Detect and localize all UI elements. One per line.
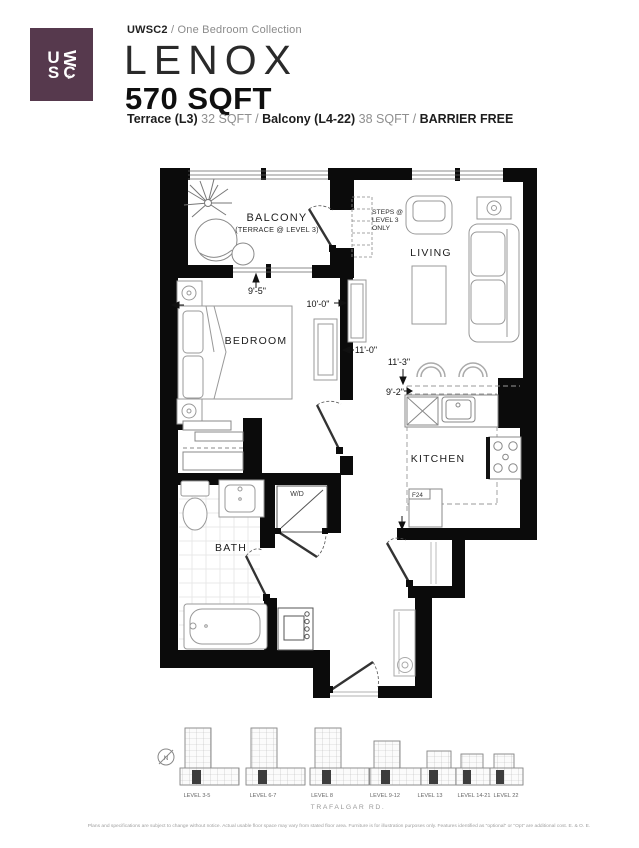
building-level-9-12 xyxy=(370,741,423,785)
toilet-tank xyxy=(181,481,209,496)
keyplan-labels: LEVEL 3-5 LEVEL 6-7 LEVEL 8 LEVEL 9-12 L… xyxy=(184,793,519,799)
dim-living: 11'-3" xyxy=(388,357,410,367)
floorplan-page: { "header": { "logo": {"u": "U", "w": "W… xyxy=(0,0,639,848)
label-steps-note: STEPS @ LEVEL 3 ONLY xyxy=(372,209,403,232)
coffee-table xyxy=(412,266,446,324)
steps-dashed-outline xyxy=(352,197,372,257)
bar-stools xyxy=(417,363,487,377)
level-label-6: LEVEL 22 xyxy=(494,793,519,799)
label-living: LIVING xyxy=(410,247,452,259)
lounge-chair xyxy=(195,219,237,261)
label-wd: W/D xyxy=(290,491,304,498)
level-label-0: LEVEL 3-5 xyxy=(184,793,211,799)
level-label-3: LEVEL 9-12 xyxy=(370,793,400,799)
bedroom-door-leaf xyxy=(317,405,340,451)
building-level-8 xyxy=(310,728,369,785)
label-fridge: F24 xyxy=(412,492,423,499)
level-label-2: LEVEL 8 xyxy=(311,793,333,799)
sliding-closet xyxy=(183,421,243,470)
entry-door-leaf xyxy=(331,662,373,690)
dim-kitchen: 9'-2" xyxy=(386,387,404,397)
label-bedroom: BEDROOM xyxy=(225,335,288,347)
compass-n: N xyxy=(164,755,169,762)
svg-text:LEVEL 3: LEVEL 3 xyxy=(372,217,399,224)
level-label-4: LEVEL 13 xyxy=(418,793,443,799)
label-kitchen: KITCHEN xyxy=(411,453,466,465)
nightstand xyxy=(177,281,202,306)
dim-balcony: 9'-5" xyxy=(248,286,266,296)
keyplan-buildings xyxy=(180,728,523,785)
building-level-14-21 xyxy=(456,754,495,785)
toilet-bowl xyxy=(183,498,207,530)
keyplan: N xyxy=(158,728,523,811)
bath-door-leaf xyxy=(246,556,267,598)
balcony-furniture xyxy=(184,179,254,265)
utility-appliance xyxy=(278,608,313,650)
balcony-railing xyxy=(188,171,328,179)
side-table xyxy=(232,243,254,265)
level-label-5: LEVEL 14-21 xyxy=(457,793,490,799)
street-label: TRAFALGAR RD. xyxy=(311,804,386,811)
closet-door-leaf xyxy=(387,543,410,584)
dresser xyxy=(314,319,337,380)
dim-bedroom-len: 11'-0" xyxy=(355,345,377,355)
svg-text:STEPS @: STEPS @ xyxy=(372,209,403,216)
floorplan-drawing: BALCONY (TERRACE @ LEVEL 3) LIVING BEDRO… xyxy=(0,0,639,848)
label-bath: BATH xyxy=(215,542,247,554)
wd-door-leaf xyxy=(280,533,317,557)
bath-fixtures xyxy=(181,480,267,649)
building-level-3-5 xyxy=(180,728,239,785)
building-level-22 xyxy=(490,754,523,785)
label-balcony: BALCONY xyxy=(247,212,308,224)
label-balcony-note: (TERRACE @ LEVEL 3) xyxy=(235,225,319,234)
entry-closet-rod xyxy=(431,542,436,584)
nightstand xyxy=(177,399,202,424)
balcony-slider xyxy=(233,268,312,272)
level-label-1: LEVEL 6-7 xyxy=(250,793,277,799)
building-level-6-7 xyxy=(246,728,305,785)
side-unit xyxy=(477,197,511,219)
dim-bedroom: 10'-0" xyxy=(307,299,330,309)
svg-text:ONLY: ONLY xyxy=(372,225,390,232)
disclaimer-text: Plans and specifications are subject to … xyxy=(88,823,590,829)
entry-threshold xyxy=(330,692,378,696)
plant xyxy=(184,179,232,217)
